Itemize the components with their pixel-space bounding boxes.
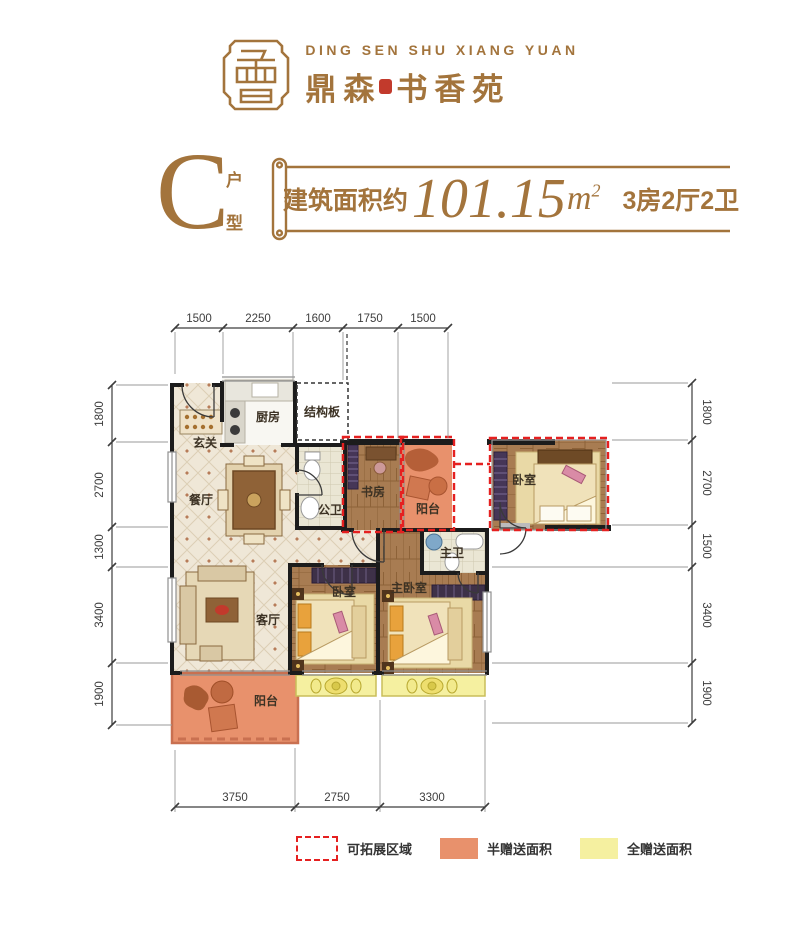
dim-top-3: 1600 bbox=[305, 313, 331, 325]
label-living: 客厅 bbox=[255, 612, 280, 627]
legend-half-gift: 半赠送面积 bbox=[440, 838, 552, 859]
floor-plan: 玄关 厨房 结构板 餐厅 公卫 书房 阳台 卧室 主卫 卧室 主卧室 客厅 阳台 bbox=[0, 0, 800, 945]
full-gift-label: 全赠送面积 bbox=[627, 839, 692, 858]
legend-expandable: 可拓展区域 bbox=[296, 836, 412, 861]
label-study: 书房 bbox=[361, 484, 385, 499]
label-bedroom-detached: 卧室 bbox=[512, 472, 536, 487]
expandable-label: 可拓展区域 bbox=[347, 839, 412, 858]
flyer-page: DING SEN SHU XIANG YUAN 鼎森 书香苑 C 户 型 建筑面… bbox=[0, 0, 800, 945]
dim-left-4: 3400 bbox=[94, 602, 106, 628]
label-master-bath: 主卫 bbox=[440, 545, 464, 560]
dim-left-3: 1300 bbox=[94, 534, 106, 560]
dim-right-2: 2700 bbox=[700, 470, 712, 496]
half-gift-swatch bbox=[440, 838, 478, 859]
label-public-bath: 公卫 bbox=[318, 503, 342, 517]
dim-top-1: 1500 bbox=[186, 313, 212, 325]
legend: 可拓展区域 半赠送面积 全赠送面积 bbox=[296, 836, 692, 861]
dim-bottom-2: 2750 bbox=[324, 792, 350, 804]
label-balcony-bottom: 阳台 bbox=[254, 693, 278, 708]
full-gift-swatch bbox=[580, 838, 618, 859]
label-master-bedroom: 主卧室 bbox=[391, 580, 427, 595]
label-dining: 餐厅 bbox=[189, 492, 213, 507]
dim-left-2: 2700 bbox=[94, 472, 106, 498]
dim-top-2: 2250 bbox=[245, 313, 271, 325]
label-bedroom2: 卧室 bbox=[332, 584, 356, 599]
label-balcony-top: 阳台 bbox=[416, 501, 440, 516]
half-gift-label: 半赠送面积 bbox=[487, 839, 552, 858]
legend-full-gift: 全赠送面积 bbox=[580, 838, 692, 859]
dim-bottom-3: 3300 bbox=[419, 792, 445, 804]
dim-left-5: 1900 bbox=[94, 681, 106, 707]
label-entry: 玄关 bbox=[193, 435, 217, 450]
expandable-swatch bbox=[296, 836, 338, 861]
dim-right-3: 1500 bbox=[700, 533, 712, 559]
dim-left-1: 1800 bbox=[94, 401, 106, 427]
label-structural: 结构板 bbox=[304, 404, 341, 419]
dim-right-1: 1800 bbox=[700, 399, 712, 425]
dim-top-5: 1500 bbox=[410, 313, 436, 325]
label-kitchen: 厨房 bbox=[256, 409, 280, 424]
dim-bottom-1: 3750 bbox=[222, 792, 248, 804]
dim-top-4: 1750 bbox=[357, 313, 383, 325]
dim-right-4: 3400 bbox=[700, 602, 712, 628]
dim-right-5: 1900 bbox=[700, 680, 712, 706]
